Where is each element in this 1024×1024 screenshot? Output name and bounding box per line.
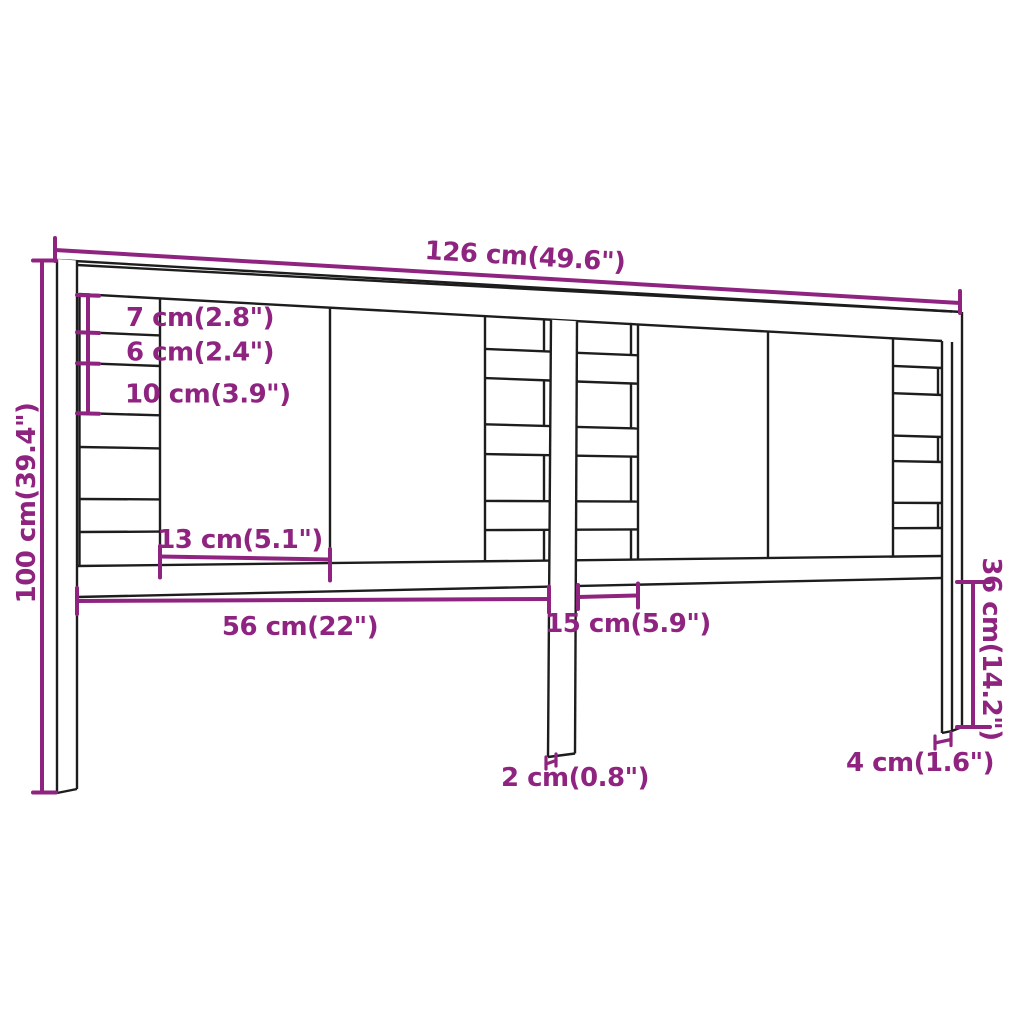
- dim-top-slat-label: 7 cm(2.8"): [126, 303, 274, 333]
- slat-stack-right: [893, 366, 942, 528]
- dim-leg-thickness: 4 cm(1.6"): [846, 733, 994, 779]
- headboard-dimension-diagram: 126 cm(49.6") 100 cm(39.4") 7 cm(2.8") 6…: [0, 0, 1024, 1024]
- dim-center-section-label: 15 cm(5.9"): [545, 609, 711, 639]
- dim-slat-bracket: 7 cm(2.8") 6 cm(2.4") 10 cm(3.9"): [77, 295, 291, 414]
- dim-overall-height: 100 cm(39.4"): [12, 261, 56, 793]
- slat-stack-left: [79, 294, 160, 566]
- dim-leg-height: 36 cm(14.2"): [957, 557, 1006, 740]
- slat-stack-mid-left: [485, 319, 550, 560]
- dim-leg-height-label: 36 cm(14.2"): [976, 557, 1006, 740]
- dim-post-thickness-label: 2 cm(0.8"): [501, 763, 649, 793]
- dim-left-section-label: 56 cm(22"): [222, 612, 378, 642]
- dim-slat-gap-label: 6 cm(2.4"): [126, 338, 274, 368]
- dim-leg-thickness-label: 4 cm(1.6"): [846, 748, 994, 778]
- right-leg: [942, 341, 962, 733]
- dim-board-width-label: 13 cm(5.1"): [157, 525, 323, 555]
- dim-post-thickness: 2 cm(0.8"): [501, 754, 649, 793]
- left-leg: [57, 259, 77, 793]
- diagram-canvas: 126 cm(49.6") 100 cm(39.4") 7 cm(2.8") 6…: [0, 0, 1024, 1024]
- dim-slat-height-label: 10 cm(3.9"): [125, 380, 291, 410]
- center-post: [548, 320, 577, 757]
- slat-stack-mid-right: [577, 323, 638, 560]
- dim-overall-height-label: 100 cm(39.4"): [12, 403, 42, 604]
- bottom-rail: [77, 556, 942, 597]
